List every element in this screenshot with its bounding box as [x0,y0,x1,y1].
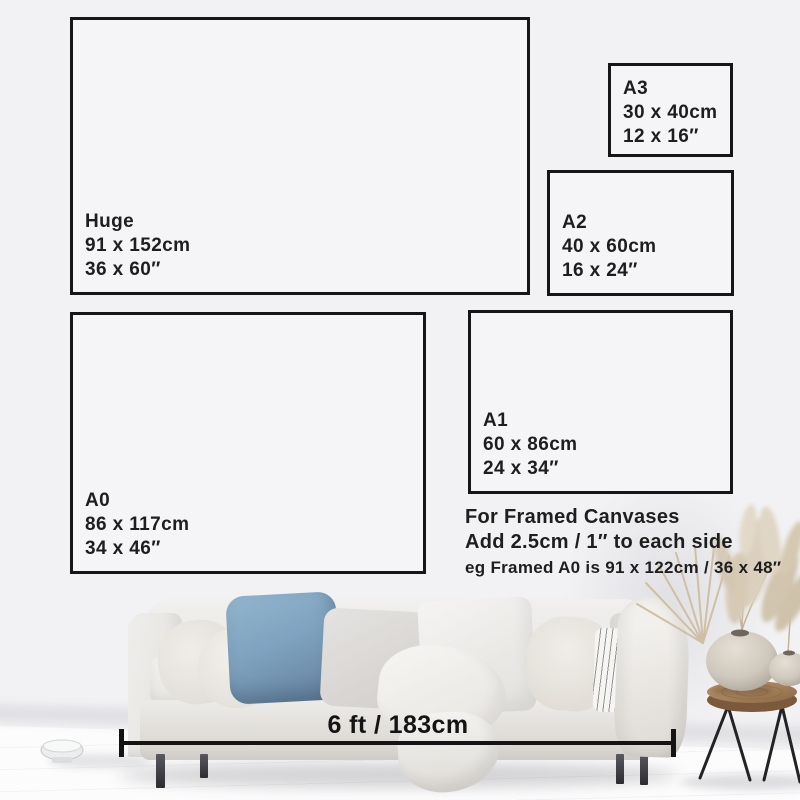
size-guide-image: Huge 91 x 152cm 36 x 60″ A3 30 x 40cm 12… [0,0,800,800]
size-inches: 16 x 24″ [562,259,725,283]
framed-note-line3: eg Framed A0 is 91 x 122cm / 36 x 48″ [465,557,800,578]
framed-note-line1: For Framed Canvases [465,505,800,530]
sofa-width-label: 6 ft / 183cm [288,711,508,740]
size-box-a3-label: A3 30 x 40cm 12 x 16″ [611,77,730,154]
size-cm: 30 x 40cm [623,101,724,125]
measurement-end-cap-right [671,729,676,757]
size-name: A2 [562,211,725,235]
size-inches: 24 x 34″ [483,457,724,481]
size-inches: 34 x 46″ [85,537,417,561]
size-box-a2-label: A2 40 x 60cm 16 x 24″ [550,211,731,293]
size-box-a1-label: A1 60 x 86cm 24 x 34″ [471,409,730,491]
size-box-a3: A3 30 x 40cm 12 x 16″ [608,63,733,157]
measurement-end-cap-left [119,729,124,757]
size-cm: 60 x 86cm [483,433,724,457]
side-table [680,681,800,790]
size-box-a0-label: A0 86 x 117cm 34 x 46″ [73,489,423,571]
framed-note-line2: Add 2.5cm / 1″ to each side [465,530,800,555]
size-cm: 40 x 60cm [562,235,725,259]
size-name: A1 [483,409,724,433]
framed-canvas-note: For Framed Canvases Add 2.5cm / 1″ to ea… [465,505,800,578]
size-box-a0: A0 86 x 117cm 34 x 46″ [70,312,426,574]
size-name: A3 [623,77,724,101]
size-name: A0 [85,489,417,513]
size-inches: 12 x 16″ [623,125,724,149]
measurement-line [122,741,675,745]
size-name: Huge [85,210,521,234]
size-box-a2: A2 40 x 60cm 16 x 24″ [547,170,734,296]
size-cm: 86 x 117cm [85,513,417,537]
size-cm: 91 x 152cm [85,234,521,258]
size-box-huge: Huge 91 x 152cm 36 x 60″ [70,17,530,295]
size-box-huge-label: Huge 91 x 152cm 36 x 60″ [73,210,527,292]
size-box-a1: A1 60 x 86cm 24 x 34″ [468,310,733,494]
size-inches: 36 x 60″ [85,258,521,282]
